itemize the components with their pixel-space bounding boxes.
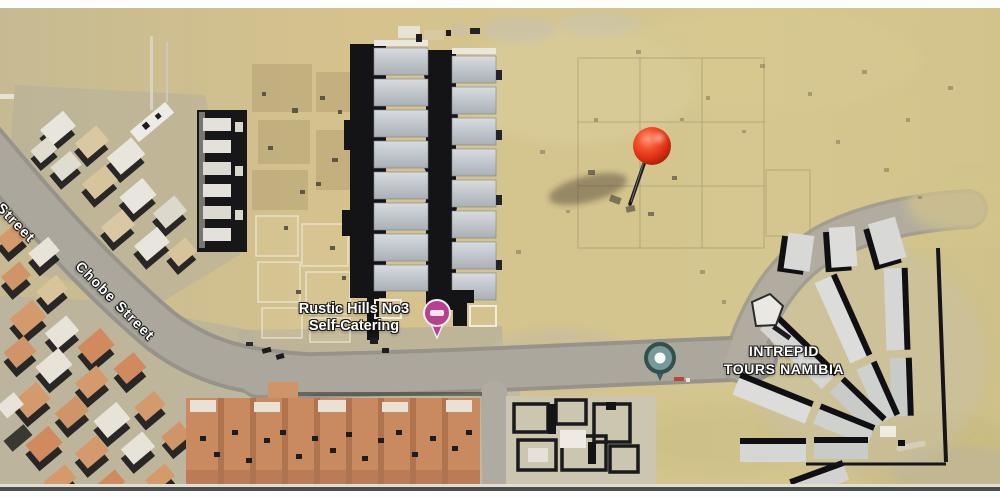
poi-label-rustic-line1: Rustic Hills No3 bbox=[268, 301, 440, 318]
poi-label-intrepid-line1: INTREPID bbox=[700, 342, 868, 360]
satellite-layer bbox=[0, 0, 1000, 498]
map-canvas[interactable]: e Street Chobe Street Rustic Hills No3 S… bbox=[0, 0, 1000, 498]
road-main bbox=[258, 358, 755, 376]
poi-label-intrepid-line2: TOURS NAMIBIA bbox=[700, 360, 868, 378]
poi-label-rustic: Rustic Hills No3 Self-Catering bbox=[268, 301, 440, 335]
photo-border-bottom bbox=[0, 491, 1000, 498]
photo-border-top bbox=[0, 0, 1000, 8]
poi-label-rustic-line2: Self-Catering bbox=[268, 318, 440, 335]
gray-complex-bottom bbox=[506, 396, 656, 486]
pushpin-head bbox=[633, 127, 671, 165]
ladder-building bbox=[197, 110, 247, 252]
road-side bbox=[494, 394, 496, 498]
poi-label-intrepid: INTREPID TOURS NAMIBIA bbox=[700, 342, 868, 378]
